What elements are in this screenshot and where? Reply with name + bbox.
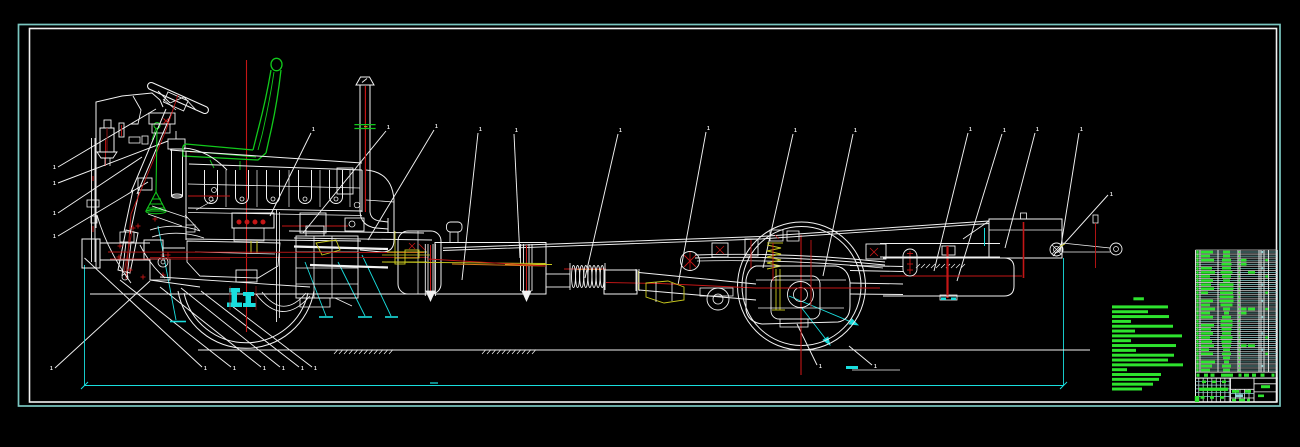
svg-text:1: 1 (314, 366, 317, 372)
svg-text:1: 1 (50, 366, 53, 372)
svg-text:1: 1 (619, 128, 622, 134)
svg-text:1: 1 (515, 128, 518, 134)
svg-text:1: 1 (1003, 128, 1006, 134)
svg-text:1: 1 (435, 124, 438, 130)
svg-text:1: 1 (1080, 127, 1083, 133)
svg-text:1: 1 (1110, 192, 1113, 198)
svg-text:1: 1 (312, 127, 315, 133)
svg-text:1: 1 (282, 366, 285, 372)
svg-text:1: 1 (819, 364, 822, 370)
svg-text:1: 1 (387, 125, 390, 131)
svg-text:1: 1 (53, 234, 56, 240)
svg-text:1: 1 (794, 128, 797, 134)
svg-text:1: 1 (263, 366, 266, 372)
svg-text:1: 1 (53, 165, 56, 171)
svg-text:1: 1 (53, 181, 56, 187)
svg-text:1: 1 (53, 211, 56, 217)
svg-text:1: 1 (874, 364, 877, 370)
svg-text:1: 1 (1036, 127, 1039, 133)
svg-text:1: 1 (969, 127, 972, 133)
svg-text:1: 1 (854, 128, 857, 134)
svg-text:1: 1 (707, 126, 710, 132)
svg-text:1: 1 (204, 366, 207, 372)
svg-text:1: 1 (233, 366, 236, 372)
svg-text:1: 1 (301, 366, 304, 372)
svg-text:1: 1 (479, 127, 482, 133)
